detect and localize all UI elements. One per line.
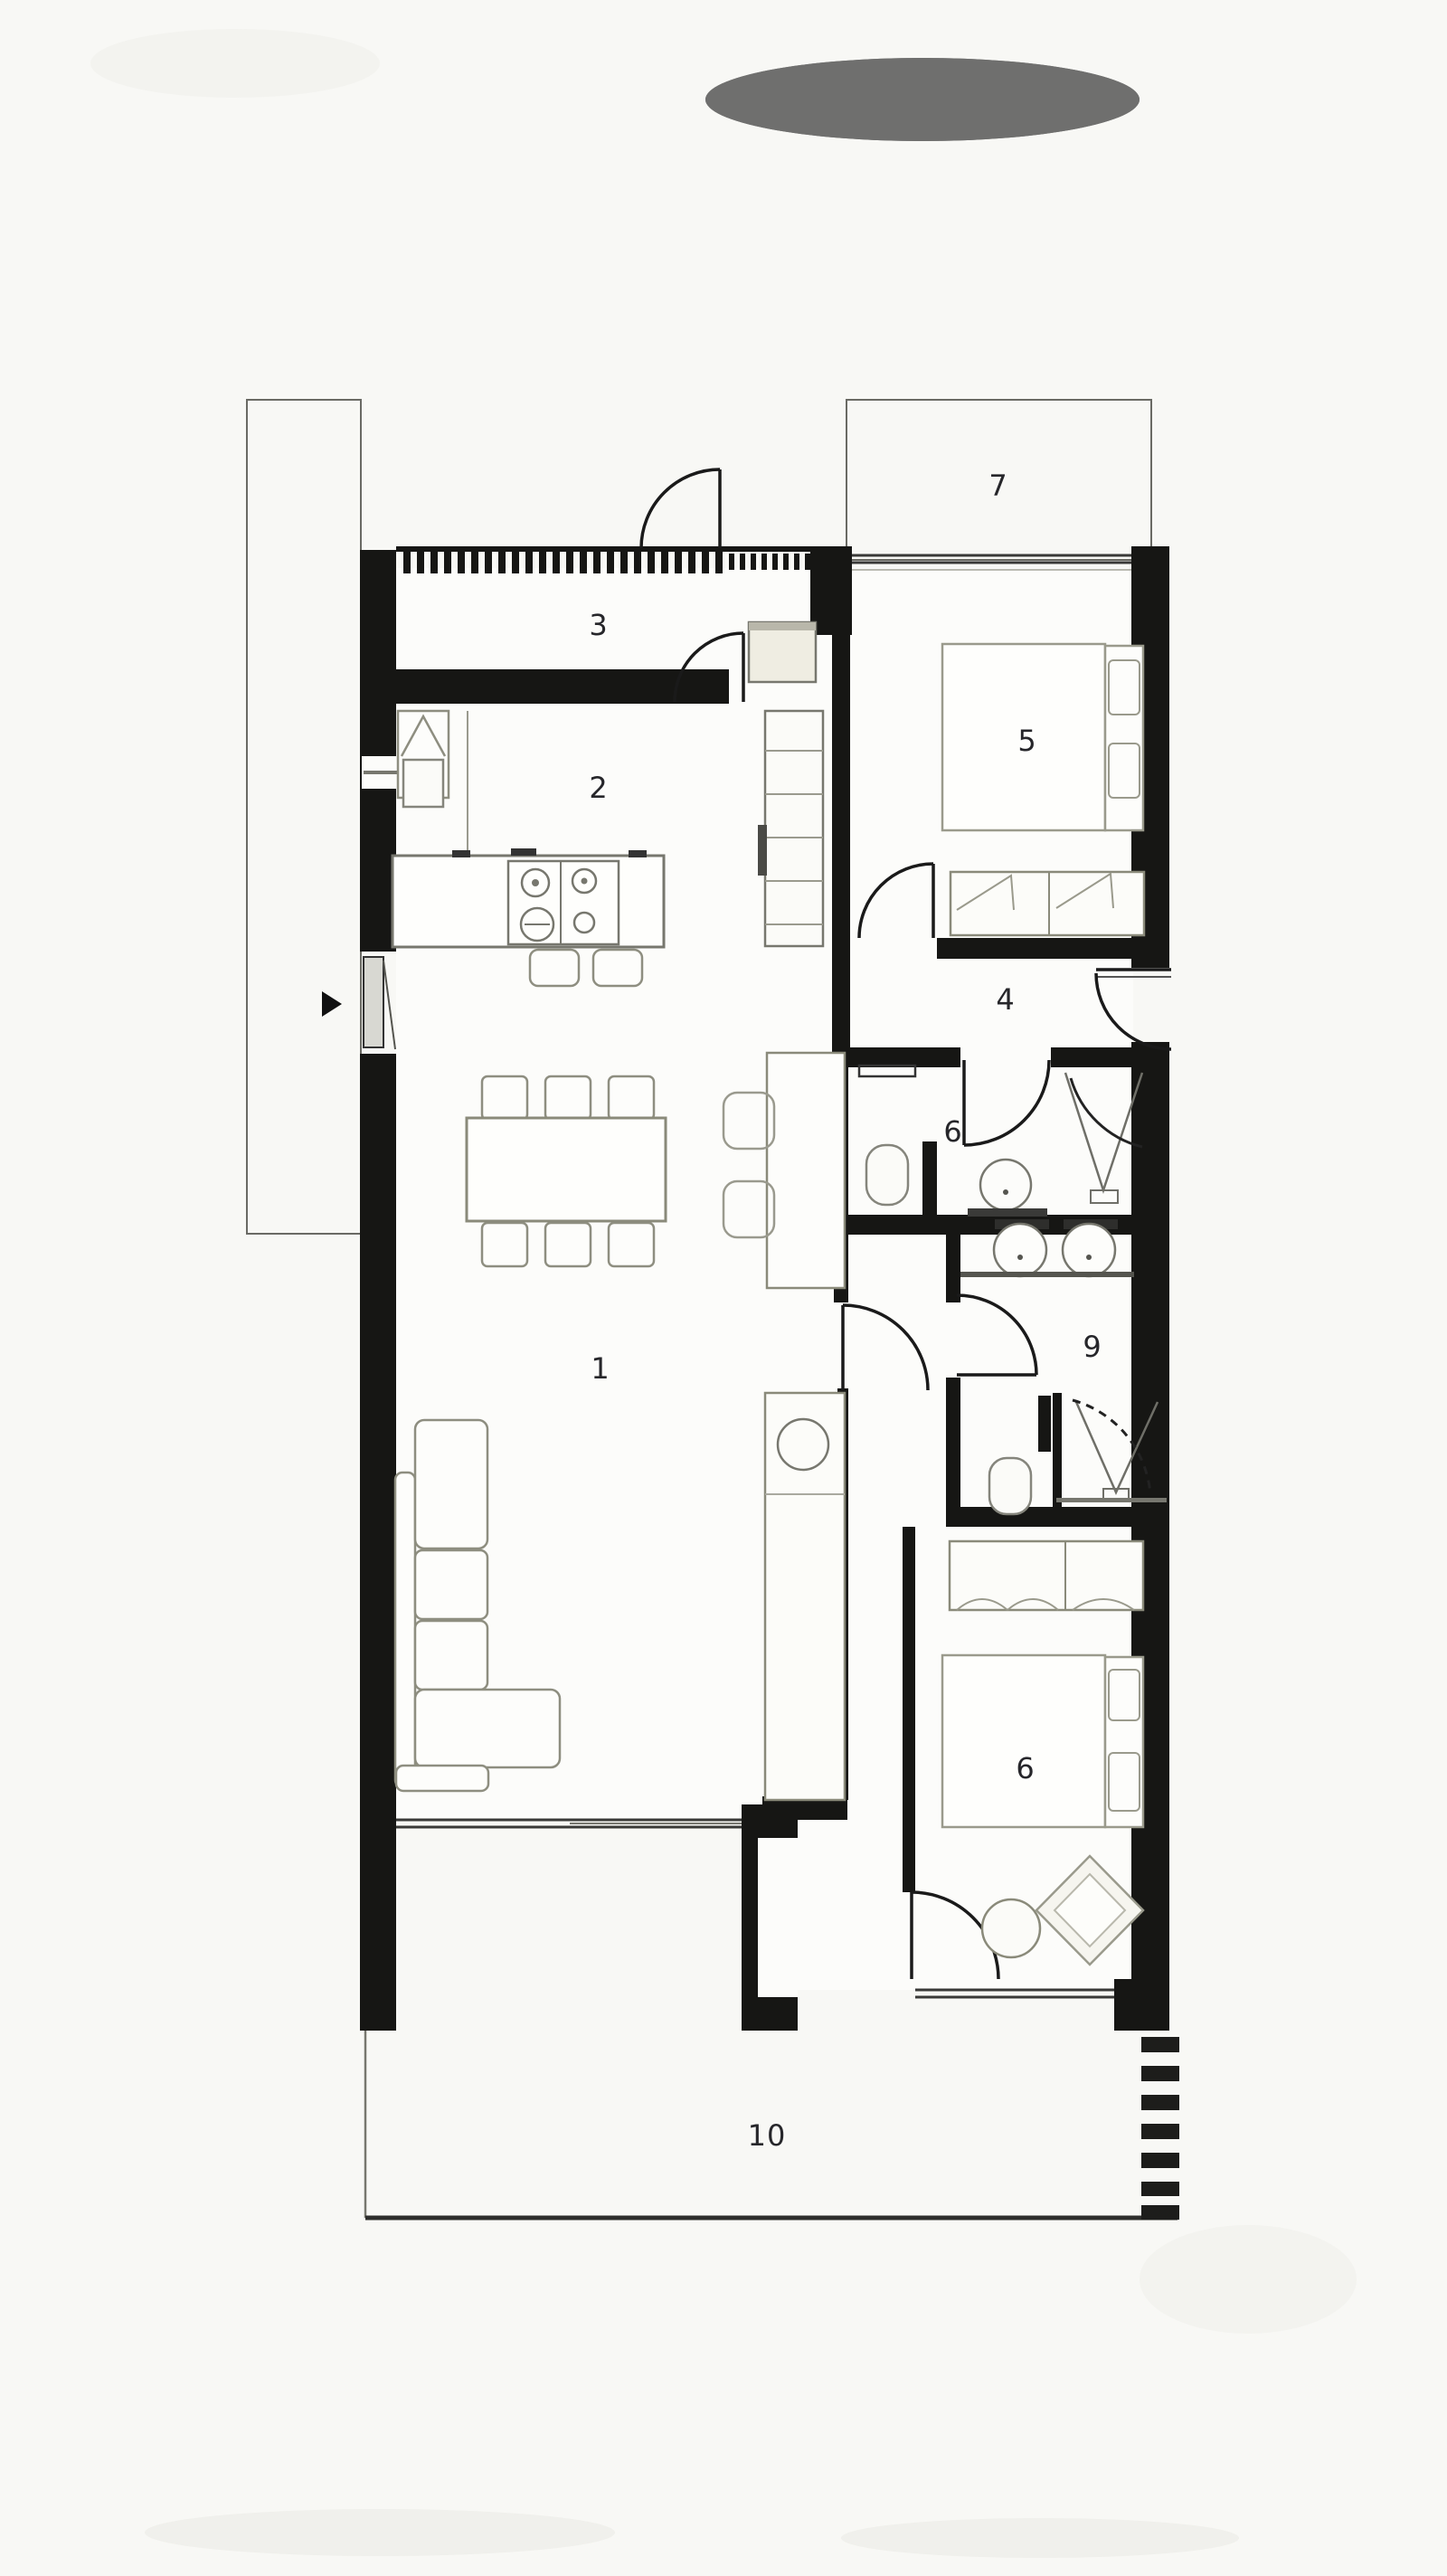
room-label-bedroom2: 6 xyxy=(1016,1751,1035,1785)
dining-table xyxy=(467,1118,666,1221)
main-entry-door xyxy=(364,957,395,1049)
dining-chair xyxy=(545,1076,591,1120)
storage-counter xyxy=(765,1393,845,1800)
dining-chair xyxy=(545,1223,591,1266)
dining-chair xyxy=(609,1223,654,1266)
dining-chair xyxy=(609,1076,654,1120)
bed-secondary xyxy=(942,1655,1105,1827)
room-label-bedroom5: 5 xyxy=(1017,724,1036,758)
entry-cabinet xyxy=(749,622,816,682)
desk xyxy=(767,1053,845,1288)
vanity-basin xyxy=(994,1224,1046,1276)
bed-headboard xyxy=(1105,1657,1143,1827)
room-label-terrace-upper: 7 xyxy=(988,469,1007,503)
bedroom5-furniture xyxy=(942,644,1144,935)
vanity-counter xyxy=(960,1272,1134,1277)
vanity-basin xyxy=(1063,1224,1115,1276)
room-label-terrace-lower: 10 xyxy=(748,2118,787,2153)
room-label-bathroom: 6 xyxy=(943,1114,962,1149)
dining-chair xyxy=(482,1076,527,1120)
sofa-chaise xyxy=(415,1690,560,1767)
entry-arrow-icon xyxy=(322,991,342,1017)
kitchen-tall-cabinets xyxy=(758,711,823,946)
room-label-living: 1 xyxy=(591,1351,610,1386)
floor-plan-page: 1 2 3 4 5 6 7 6 9 10 xyxy=(0,0,1447,2576)
basin-counter xyxy=(968,1208,1047,1217)
kitchen-sink-unit xyxy=(398,711,449,807)
toilet xyxy=(866,1145,908,1205)
room-label-kitchen: 2 xyxy=(589,771,608,805)
wardrobe xyxy=(950,872,1144,935)
room-label-ensuite: 9 xyxy=(1083,1330,1102,1364)
porch-outline xyxy=(247,400,361,1234)
door-street-to-entry xyxy=(641,469,720,548)
kitchen-island xyxy=(392,848,664,947)
room-label-hallway: 4 xyxy=(996,982,1015,1017)
bed-headboard xyxy=(1105,646,1143,830)
room-label-entry: 3 xyxy=(589,608,608,642)
dresser xyxy=(950,1541,1143,1610)
boundary-dashes xyxy=(1141,2037,1179,2220)
floor-plan-svg: 1 2 3 4 5 6 7 6 9 10 xyxy=(0,0,1447,2576)
toilet xyxy=(989,1458,1031,1514)
dining-chair xyxy=(482,1223,527,1266)
bar-stool xyxy=(593,950,642,986)
bar-stool xyxy=(530,950,579,986)
pouf xyxy=(982,1899,1040,1957)
dining-set xyxy=(467,1076,666,1266)
